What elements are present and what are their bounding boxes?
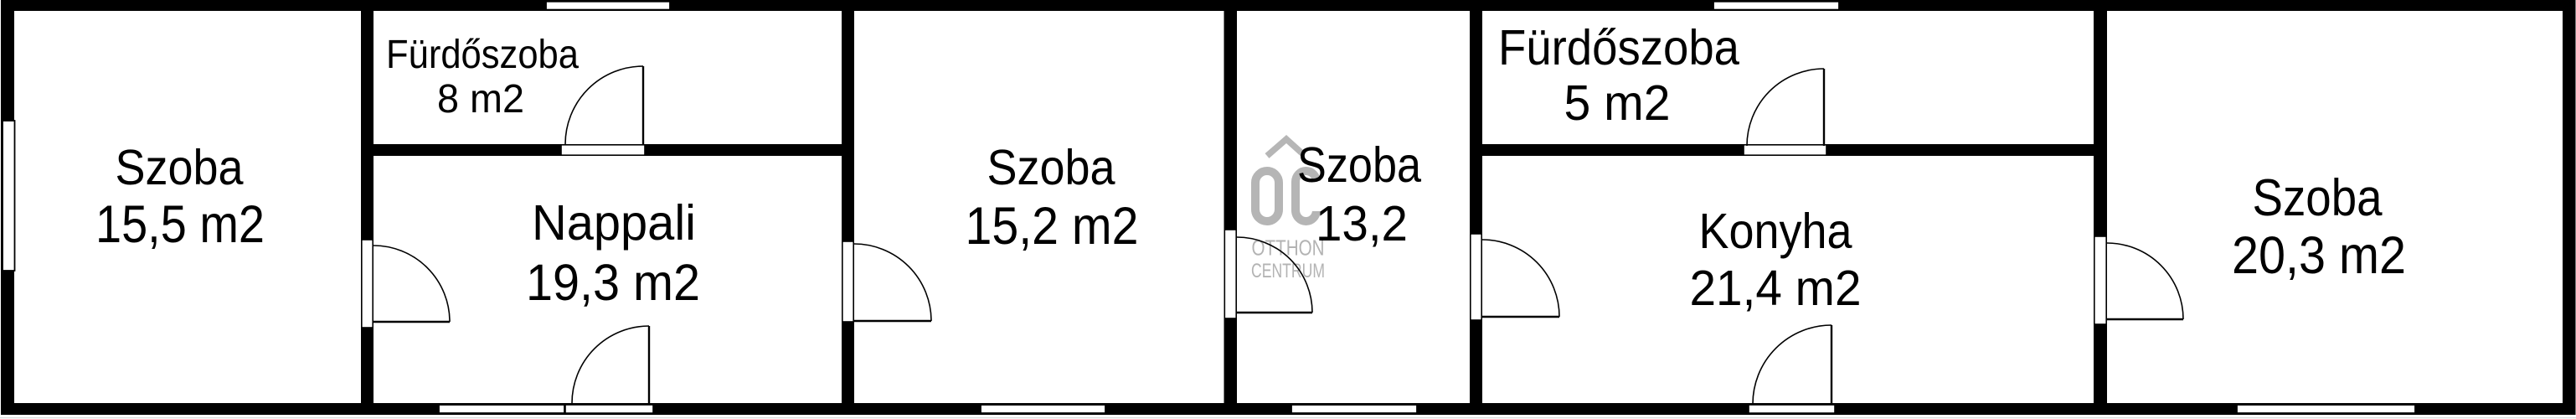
svg-text:15,2 m2: 15,2 m2	[966, 197, 1139, 256]
svg-text:8 m2: 8 m2	[437, 77, 524, 122]
svg-text:15,5 m2: 15,5 m2	[95, 195, 265, 254]
svg-text:20,3 m2: 20,3 m2	[2232, 226, 2406, 285]
svg-text:5 m2: 5 m2	[1564, 75, 1671, 131]
svg-text:Konyha: Konyha	[1699, 204, 1852, 259]
svg-text:Fürdőszoba: Fürdőszoba	[386, 33, 579, 77]
svg-text:Szoba: Szoba	[2253, 169, 2383, 227]
svg-text:Szoba: Szoba	[987, 140, 1115, 195]
svg-text:Nappali: Nappali	[532, 195, 696, 251]
svg-text:19,3 m2: 19,3 m2	[526, 254, 700, 311]
svg-text:Szoba: Szoba	[116, 140, 244, 195]
svg-text:Fürdőszoba: Fürdőszoba	[1498, 20, 1739, 75]
svg-text:Szoba: Szoba	[1297, 137, 1421, 193]
svg-text:13,2: 13,2	[1316, 196, 1408, 251]
svg-text:21,4 m2: 21,4 m2	[1690, 261, 1862, 316]
svg-text:CENTRUM: CENTRUM	[1251, 260, 1325, 282]
